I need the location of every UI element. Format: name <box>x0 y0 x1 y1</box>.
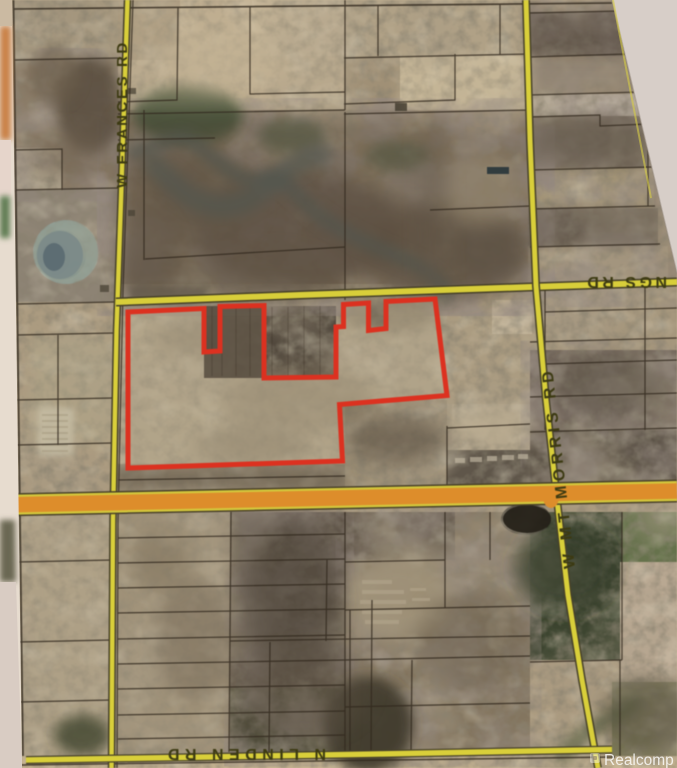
svg-text:W FRANCES RD: W FRANCES RD <box>114 40 131 188</box>
svg-text:NGS RD: NGS RD <box>584 273 667 290</box>
svg-text:N LINDEN RD: N LINDEN RD <box>162 745 326 762</box>
svg-text:Realcomp: Realcomp <box>604 752 674 768</box>
